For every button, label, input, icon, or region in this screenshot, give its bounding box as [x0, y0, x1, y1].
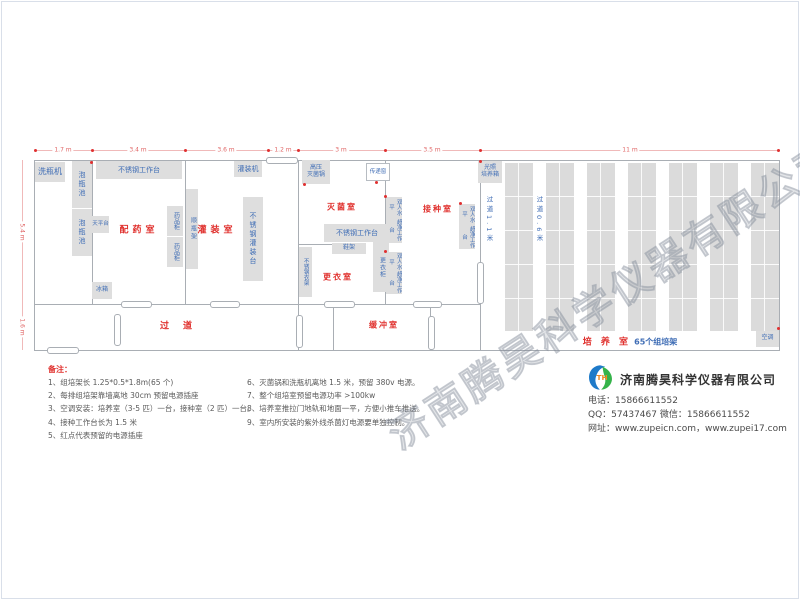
note-item-5: 5、红点代表预留的电源插座	[48, 430, 143, 441]
door-peiyang	[477, 262, 484, 304]
balance-table-label: 天平台	[92, 221, 109, 227]
power-outlet-dot	[479, 160, 482, 163]
soak-pool-box-1: 泡瓶池	[72, 161, 92, 208]
culture-rack-column	[669, 163, 697, 331]
culture-rack-column	[751, 163, 779, 331]
door-corridor-left	[114, 314, 121, 346]
note-item-2: 2、每排组培架靠墙离地 30cm 预留电源插座	[48, 390, 199, 401]
ss-worktable-box-miejun: 不锈钢工作台	[324, 224, 390, 242]
laminar-bench-box-3: 双人水平超净工作台	[459, 204, 475, 249]
shoe-rack-box: 鞋架	[332, 243, 366, 254]
note-item-1: 1、组培架长 1.25*0.5*1.8m(65 个)	[48, 377, 173, 388]
dim-tick-dot	[267, 149, 270, 152]
culture-rack-column	[587, 163, 615, 331]
dim-tick-dot	[91, 149, 94, 152]
soak-pool-box-2: 泡瓶池	[72, 209, 92, 256]
power-outlet-dot	[459, 202, 462, 205]
medicine-cabinet-label: 药品柜	[172, 212, 179, 230]
company-name: 济南腾昊科学仪器有限公司	[620, 371, 776, 388]
medicine-cabinet-label: 药品柜	[172, 243, 179, 261]
power-outlet-dot	[384, 195, 387, 198]
wall-jiezhong-peiyang	[480, 160, 481, 351]
company-phone: 电话：15866611552	[588, 393, 678, 406]
fridge-box: 冰箱	[92, 282, 112, 299]
laminar-bench-label-line1: 双人水平	[386, 252, 401, 271]
air-conditioner-box: 空调	[756, 330, 779, 347]
laminar-bench-label-line2: 超净工作台	[386, 271, 401, 294]
company-qq-wechat: QQ：57437467 微信：15866611552	[588, 407, 750, 420]
fridge-label: 冰箱	[96, 287, 108, 294]
bottle-washer-box: 洗瓶机	[35, 162, 65, 182]
culture-rack-column	[710, 163, 738, 331]
ss-worktable-label: 不锈钢工作台	[336, 229, 378, 237]
dim-tick-dot	[479, 149, 482, 152]
dim-top-5: 3 m	[333, 147, 349, 154]
laminar-bench-box-1: 双人水平超净工作台	[386, 197, 402, 243]
light-incubator-box: 光照培养箱	[478, 161, 502, 183]
pass-window-box: 传递窗	[366, 163, 390, 181]
dim-tick-dot	[777, 149, 780, 152]
ss-fill-table-label: 不锈钢灌装台	[249, 212, 257, 266]
fill-machine-box: 灌装机	[234, 161, 262, 177]
wall-right	[779, 160, 780, 351]
culture-rack-column	[505, 163, 533, 331]
room-label-huanchong: 缓冲室	[369, 320, 399, 331]
power-outlet-dot	[375, 181, 378, 184]
door-guanzhuang	[210, 301, 240, 308]
dim-top-6: 3.5 m	[421, 147, 442, 154]
power-outlet-dot	[384, 250, 387, 253]
room-label-peiyang-sub: 65个组培架	[634, 338, 677, 347]
soak-pool-label: 泡瓶池	[78, 171, 86, 198]
company-logo: TH	[587, 364, 614, 395]
dim-left-2: 1.6 m	[19, 316, 26, 337]
dim-tick-dot	[297, 149, 300, 152]
autoclave-label-line2: 灭菌锅	[307, 172, 325, 179]
door-buffer	[428, 316, 435, 350]
culture-rack-column	[546, 163, 574, 331]
ss-worktable-box-prep: 不锈钢工作台	[96, 161, 182, 179]
fill-machine-label: 灌装机	[238, 165, 259, 173]
wardrobe-label: 更衣柜	[378, 257, 385, 278]
note-item-4: 4、接种工作台长为 1.5 米	[48, 417, 137, 428]
dim-tick-dot	[384, 149, 387, 152]
aisle-label-1: 过道1.1米	[484, 196, 494, 258]
bottle-rack-box: 顺瓶架	[186, 189, 198, 269]
laminar-bench-label-line1: 双人水平	[386, 197, 401, 217]
power-outlet-dot	[777, 327, 780, 330]
light-incubator-label-line2: 培养箱	[481, 172, 499, 179]
room-label-guodao: 过道	[160, 319, 206, 332]
aisle-label-2: 过道0.6米	[534, 196, 544, 258]
room-label-peiyang-name: 培 养 室	[583, 338, 631, 348]
room-label-peiyang: 培 养 室 65个组培架	[583, 335, 678, 348]
dim-top-7: 11 m	[620, 147, 639, 154]
medicine-cabinet-box-1: 药品柜	[167, 206, 183, 236]
room-label-miejun: 灭菌室	[327, 202, 357, 213]
dim-top-4: 1.2 m	[272, 147, 293, 154]
room-label-gengyi: 更衣室	[323, 272, 353, 283]
laminar-bench-box-2: 双人水平超净工作台	[386, 252, 402, 294]
wall-miejun-gengyi	[298, 244, 334, 245]
door-bottom-entrance	[47, 347, 79, 354]
room-label-peiyao: 配药室	[119, 223, 158, 236]
soak-pool-label: 泡瓶池	[78, 219, 86, 246]
door-gengyi	[324, 301, 355, 308]
room-label-guanzhuang: 灌装室	[197, 223, 236, 236]
note-item-3: 3、空调安装：培养室（3-5 匹）一台，接种室（2 匹）一台。	[48, 403, 255, 414]
culture-rack-column	[628, 163, 656, 331]
wall-bottom	[34, 350, 780, 351]
notes-title: 备注：	[48, 364, 72, 375]
door-peiyao	[121, 301, 152, 308]
company-logo-icon: TH	[587, 364, 614, 391]
dim-top-3: 3.6 m	[215, 147, 236, 154]
air-conditioner-label: 空调	[761, 335, 773, 342]
laminar-bench-label-line2: 超净工作台	[459, 224, 474, 249]
laminar-bench-label-line1: 双人水平	[459, 204, 474, 224]
note-item-8: 8、培养室推拉门地轨和地面一平，方便小推车推送。	[247, 403, 424, 414]
power-outlet-dot	[303, 183, 306, 186]
dim-top-1: 1.7 m	[52, 147, 73, 154]
dim-tick-dot	[184, 149, 187, 152]
dim-tick-dot	[34, 149, 37, 152]
light-incubator-label: 光照培养箱	[481, 165, 499, 179]
pass-window-label: 传递窗	[370, 169, 387, 175]
note-item-9: 9、室内所安装的紫外线杀菌灯电源要单独控制。	[247, 417, 409, 428]
company-website: 网址：www.zupeicn.com，www.zupei17.com	[588, 421, 787, 434]
ss-clothes-rack-box: 不锈钢衣架	[299, 247, 312, 297]
medicine-cabinet-box-2: 药品柜	[167, 237, 183, 267]
wall-left	[34, 160, 35, 351]
dim-left-1: 5.4 m	[19, 221, 26, 242]
door-top-guanzhuang	[266, 157, 298, 164]
laminar-bench-label-line2: 超净工作台	[386, 217, 401, 243]
note-item-7: 7、整个组培室预留电源功率 >100kw	[247, 390, 375, 401]
power-outlet-dot	[90, 161, 93, 164]
shoe-rack-label: 鞋架	[343, 245, 355, 252]
balance-table-box: 天平台	[92, 216, 109, 233]
bottle-rack-label: 顺瓶架	[189, 217, 196, 241]
dim-top-2: 3.4 m	[127, 147, 148, 154]
ss-fill-table-box: 不锈钢灌装台	[243, 197, 263, 281]
autoclave-label: 高压灭菌锅	[307, 165, 325, 179]
room-label-jiezhong: 接种室	[423, 204, 453, 215]
ss-clothes-rack-label: 不锈钢衣架	[302, 258, 308, 286]
autoclave-box: 高压灭菌锅	[302, 160, 330, 184]
bottle-washer-label: 洗瓶机	[38, 167, 62, 176]
note-item-6: 6、灭菌锅和洗瓶机离地 1.5 米，预留 380v 电源。	[247, 377, 420, 388]
wall-corridor-buffer	[333, 304, 334, 351]
door-corridor-mid	[296, 315, 303, 348]
floorplan-page: 洗瓶机 泡瓶池 泡瓶池 不锈钢工作台 天平台 冰箱 药品柜 药品柜 顺瓶架 不锈…	[0, 0, 800, 600]
ss-worktable-label: 不锈钢工作台	[118, 166, 160, 174]
company-logo-text: TH	[596, 373, 607, 382]
door-jiezhong	[413, 301, 442, 308]
